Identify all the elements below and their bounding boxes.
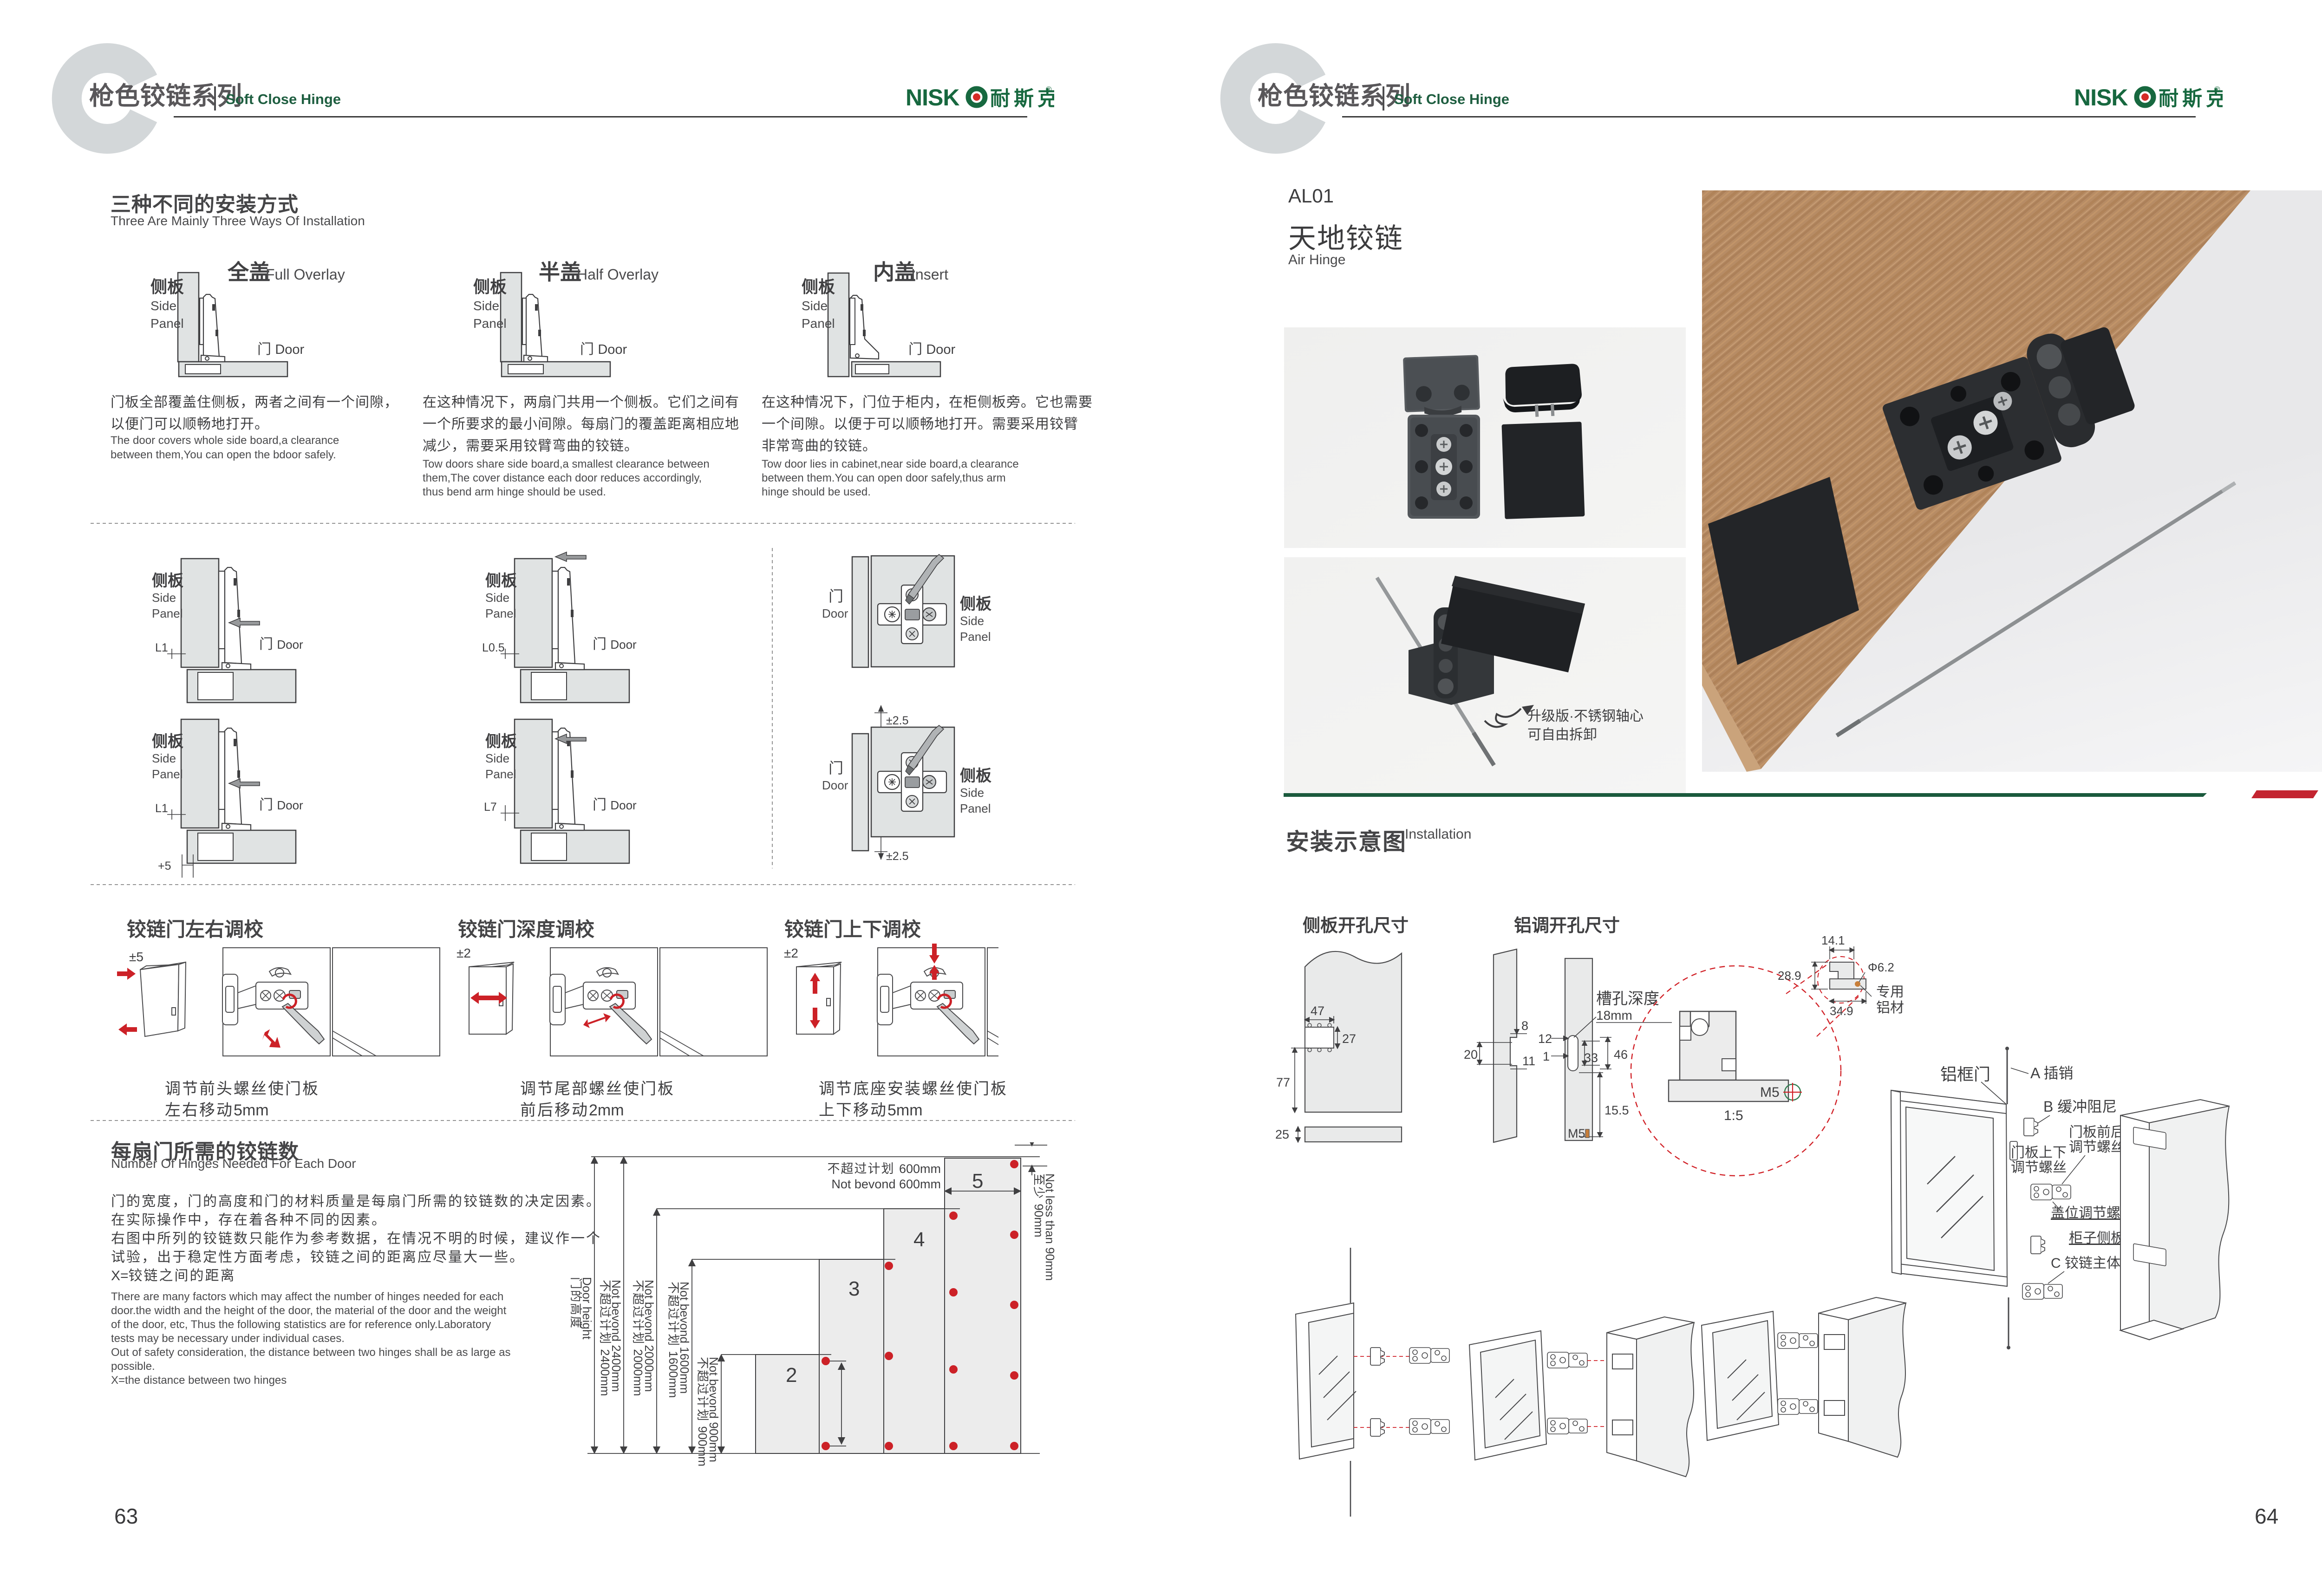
svg-text:8: 8 (1521, 1019, 1528, 1033)
svg-text:Not bevond 2000mm: Not bevond 2000mm (642, 1280, 656, 1392)
svg-text:侧板: 侧板 (150, 277, 184, 296)
svg-text:门 Door: 门 Door (593, 637, 637, 652)
svg-text:门 Door: 门 Door (908, 342, 956, 357)
svg-text:门 Door: 门 Door (259, 797, 303, 813)
svg-text:+5: +5 (158, 860, 171, 873)
svg-text:门: 门 (828, 760, 843, 776)
svg-text:±2.5: ±2.5 (886, 850, 908, 863)
svg-text:侧板: 侧板 (960, 595, 991, 613)
svg-text:Not bevond 600mm: Not bevond 600mm (831, 1177, 941, 1191)
svg-text:门板前后: 门板前后 (2069, 1125, 2125, 1140)
svg-text:Side: Side (802, 299, 828, 313)
svg-text:B 缓冲阻尼: B 缓冲阻尼 (2043, 1098, 2117, 1115)
svg-text:12: 12 (1538, 1032, 1552, 1046)
svg-text:M5: M5 (1568, 1127, 1585, 1140)
svg-text:Not bevond 1600mm: Not bevond 1600mm (678, 1282, 691, 1394)
svg-text:Panel: Panel (485, 767, 516, 781)
svg-text:侧板开孔尺寸: 侧板开孔尺寸 (1303, 916, 1409, 936)
svg-text:Panel: Panel (473, 316, 507, 331)
svg-text:27: 27 (1342, 1032, 1356, 1046)
svg-text:®: ® (2214, 85, 2220, 94)
svg-text:Half Overlay: Half Overlay (577, 266, 659, 283)
svg-text:半盖: 半盖 (539, 260, 581, 284)
svg-text:内盖: 内盖 (873, 260, 916, 284)
svg-text:Panel: Panel (485, 606, 516, 620)
svg-text:M5: M5 (1760, 1085, 1780, 1100)
svg-text:门: 门 (828, 588, 843, 605)
svg-text:Side: Side (485, 591, 509, 605)
svg-text:NISK: NISK (906, 85, 959, 111)
svg-text:Side: Side (150, 299, 176, 313)
svg-text:专用: 专用 (1876, 984, 1904, 1000)
svg-text:3: 3 (848, 1277, 860, 1300)
svg-text:Panel: Panel (150, 316, 184, 331)
svg-text:Door: Door (822, 778, 848, 792)
svg-text:Side: Side (473, 299, 499, 313)
svg-text:侧板: 侧板 (152, 572, 183, 590)
svg-text:门板上下: 门板上下 (2011, 1145, 2067, 1160)
svg-text:C 铰链主体: C 铰链主体 (2051, 1256, 2120, 1271)
svg-text:槽孔深度: 槽孔深度 (1596, 990, 1659, 1008)
svg-text:2: 2 (786, 1364, 797, 1387)
svg-text:Panel: Panel (152, 767, 183, 781)
svg-text:Side: Side (960, 614, 984, 628)
svg-text:全盖: 全盖 (227, 260, 270, 284)
svg-text:Side: Side (152, 751, 176, 765)
svg-text:Panel: Panel (960, 630, 991, 644)
svg-text:铝材: 铝材 (1876, 1000, 1904, 1016)
svg-text:铝框门: 铝框门 (1940, 1065, 1990, 1084)
svg-text:柜子侧板: 柜子侧板 (2069, 1231, 2125, 1246)
svg-text:调节螺丝: 调节螺丝 (2069, 1140, 2125, 1155)
svg-text:1: 1 (1543, 1049, 1550, 1063)
svg-text:侧板: 侧板 (473, 277, 507, 296)
svg-text:L7: L7 (484, 801, 497, 814)
svg-text:Door: Door (822, 606, 848, 620)
svg-text:L0.5: L0.5 (482, 641, 505, 654)
svg-text:门 Door: 门 Door (257, 342, 305, 357)
svg-text:门 Door: 门 Door (593, 797, 637, 813)
svg-text:20: 20 (1464, 1048, 1478, 1062)
svg-text:侧板: 侧板 (485, 572, 517, 590)
svg-text:±5: ±5 (129, 950, 143, 964)
svg-text:Not bevond 900mm: Not bevond 900mm (707, 1357, 721, 1462)
svg-text:门 Door: 门 Door (259, 637, 303, 652)
svg-text:14.1: 14.1 (1821, 933, 1845, 947)
svg-text:Panel: Panel (960, 801, 991, 815)
svg-text:Φ6.2: Φ6.2 (1868, 960, 1894, 974)
svg-text:28.9: 28.9 (1778, 969, 1801, 983)
svg-text:Full Overlay: Full Overlay (266, 266, 345, 283)
svg-text:A 插销: A 插销 (2030, 1065, 2073, 1081)
svg-text:Panel: Panel (802, 316, 835, 331)
svg-text:可自由拆卸: 可自由拆卸 (1527, 727, 1597, 743)
svg-text:18mm: 18mm (1596, 1008, 1632, 1023)
svg-text:33: 33 (1584, 1051, 1598, 1065)
svg-text:Not less than 90mm: Not less than 90mm (1043, 1173, 1057, 1281)
svg-text:铝调开孔尺寸: 铝调开孔尺寸 (1514, 916, 1620, 936)
svg-text:Door height: Door height (580, 1277, 594, 1340)
svg-text:47: 47 (1311, 1004, 1324, 1018)
svg-text:门 Door: 门 Door (580, 342, 627, 357)
svg-text:Not bevond 2400mm: Not bevond 2400mm (609, 1280, 623, 1392)
svg-text:34.9: 34.9 (1830, 1004, 1853, 1018)
svg-text:升级版·不锈钢轴心: 升级版·不锈钢轴心 (1527, 709, 1644, 724)
svg-text:不超过计划 600mm: 不超过计划 600mm (827, 1162, 941, 1176)
svg-text:NISK: NISK (2074, 85, 2128, 111)
svg-text:®: ® (1046, 85, 1052, 94)
svg-text:77: 77 (1276, 1075, 1290, 1089)
svg-text:侧板: 侧板 (960, 767, 991, 785)
svg-text:25: 25 (1275, 1127, 1289, 1141)
svg-text:耐斯克: 耐斯克 (990, 88, 1054, 110)
svg-text:4: 4 (913, 1228, 925, 1251)
svg-text:L1: L1 (155, 641, 168, 654)
svg-text:Insert: Insert (911, 266, 948, 283)
svg-text:Side: Side (960, 786, 984, 800)
svg-text:Panel: Panel (152, 606, 183, 620)
svg-text:15.5: 15.5 (1605, 1103, 1629, 1117)
svg-text:耐斯克: 耐斯克 (2159, 88, 2223, 110)
svg-text:±2.5: ±2.5 (886, 714, 908, 727)
svg-text:1:5: 1:5 (1724, 1108, 1743, 1123)
svg-text:侧板: 侧板 (152, 733, 183, 750)
svg-text:侧板: 侧板 (485, 733, 517, 750)
svg-text:Side: Side (485, 751, 509, 765)
svg-text:侧板: 侧板 (802, 277, 835, 296)
svg-text:±2: ±2 (784, 946, 798, 960)
svg-text:±2: ±2 (457, 946, 471, 960)
svg-text:Side: Side (152, 591, 176, 605)
svg-text:11: 11 (1522, 1054, 1535, 1068)
svg-text:46: 46 (1614, 1048, 1628, 1062)
svg-text:L1: L1 (155, 802, 168, 815)
svg-text:5: 5 (972, 1170, 983, 1192)
svg-text:调节螺丝: 调节螺丝 (2011, 1160, 2067, 1175)
